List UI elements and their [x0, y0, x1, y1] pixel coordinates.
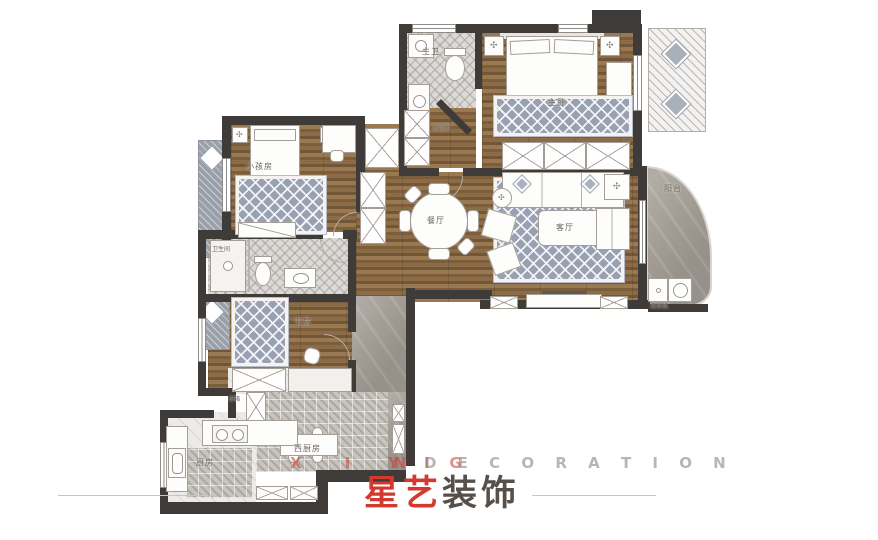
wall — [198, 230, 206, 300]
label-master-bath: 主卫 — [422, 48, 440, 56]
dining-chair — [428, 248, 450, 260]
label-living-room: 客厅 — [556, 224, 574, 232]
sink — [168, 448, 186, 478]
burner — [216, 429, 228, 441]
window-cabinet — [600, 296, 628, 309]
wall — [399, 168, 439, 176]
dining-chair — [467, 210, 479, 232]
kids-chair — [330, 150, 344, 162]
corridor-marble-floor — [352, 296, 406, 392]
pillow — [554, 39, 595, 55]
floor-plan-canvas: ✣ ✣ ✣ ✣ ✣ ✣ — [0, 0, 878, 540]
pillow — [510, 39, 551, 55]
dining-chair — [399, 210, 411, 232]
tv — [542, 291, 586, 294]
study-cabinet — [232, 368, 286, 392]
study-desk — [288, 368, 352, 392]
wardrobe — [586, 142, 630, 170]
corridor-cabinet — [392, 404, 405, 422]
logo-rule-right — [532, 495, 656, 496]
tv-cabinet — [526, 294, 602, 308]
hall-cabinet — [360, 172, 386, 208]
hall-cabinet — [365, 128, 399, 168]
wall — [222, 116, 231, 158]
wall — [198, 302, 206, 318]
vanity — [284, 268, 316, 288]
stool — [312, 427, 323, 435]
shower-head — [223, 261, 233, 271]
armchair — [596, 208, 630, 250]
flower-icon: ✣ — [613, 183, 621, 192]
window-cabinet — [490, 296, 518, 309]
wardrobe — [404, 138, 430, 166]
study-rug — [232, 298, 288, 366]
wardrobe — [544, 142, 586, 170]
washing-machine — [668, 278, 692, 302]
flower-icon: ✣ — [490, 42, 498, 51]
label-study: 书房 — [294, 318, 312, 326]
wall — [406, 288, 415, 466]
wall — [222, 116, 364, 125]
kids-desk — [322, 125, 356, 153]
balcony-cabinet — [648, 278, 668, 302]
nightstand: ✣ — [232, 127, 248, 143]
label-kitchen: 厨房 — [196, 459, 214, 467]
toilet — [255, 262, 271, 286]
wall — [160, 502, 328, 514]
kitchen-cabinet — [256, 486, 288, 500]
window — [412, 24, 456, 33]
wardrobe — [502, 142, 544, 170]
label-balcony: 阳台 — [664, 185, 682, 193]
label-dining-room: 餐厅 — [427, 217, 445, 225]
brand-logo: 星艺装饰 — [364, 477, 520, 512]
wall — [348, 296, 356, 332]
dining-chair — [428, 183, 450, 195]
window — [198, 318, 206, 362]
logo-text-red: 星艺 — [364, 474, 442, 514]
window — [633, 55, 642, 111]
watermark-decoration: D E C O R A T I O N — [424, 456, 734, 471]
knob — [656, 288, 661, 293]
washer-drum — [673, 283, 688, 298]
stove — [212, 425, 248, 443]
nightstand: ✣ — [600, 36, 620, 56]
label-master-bedroom: 主卧 — [548, 99, 566, 107]
window — [222, 158, 231, 212]
label-bathroom: 卫生间 — [212, 247, 230, 253]
label-kids-room: 小孩房 — [246, 163, 273, 171]
hall-cabinet — [360, 208, 386, 244]
burner — [232, 429, 244, 441]
basin — [413, 95, 426, 108]
sink-basin — [172, 453, 183, 474]
nightstand: ✣ — [484, 36, 504, 56]
kitchen-center-tile — [186, 448, 252, 498]
logo-text-dark: 装饰 — [442, 474, 520, 514]
wall — [415, 290, 492, 299]
wall — [160, 410, 214, 418]
flower-icon: ✣ — [236, 131, 243, 139]
label-washer: 洗衣机 — [650, 304, 668, 310]
flower-icon: ✣ — [606, 42, 614, 51]
label-cloakroom: 衣帽间 — [432, 126, 450, 132]
wall — [475, 31, 482, 89]
kitchen-cabinet — [290, 486, 318, 500]
wall — [348, 238, 356, 296]
wall — [228, 388, 236, 418]
window — [639, 200, 646, 264]
window — [558, 24, 588, 33]
wardrobe — [404, 110, 430, 138]
pillow — [254, 129, 296, 141]
glass-partition — [248, 240, 250, 292]
label-west-kitchen: 西厨房 — [294, 445, 321, 453]
logo-rule-left — [58, 495, 208, 496]
corridor-cabinet — [392, 424, 405, 454]
flower-icon: ✣ — [498, 194, 505, 202]
basin — [293, 273, 309, 284]
bench — [238, 222, 296, 238]
toilet — [445, 55, 465, 81]
plant-stand: ✣ — [492, 188, 512, 208]
side-table: ✣ — [604, 174, 630, 200]
label-fridge: 冰箱 — [228, 397, 240, 403]
fridge — [246, 392, 266, 422]
